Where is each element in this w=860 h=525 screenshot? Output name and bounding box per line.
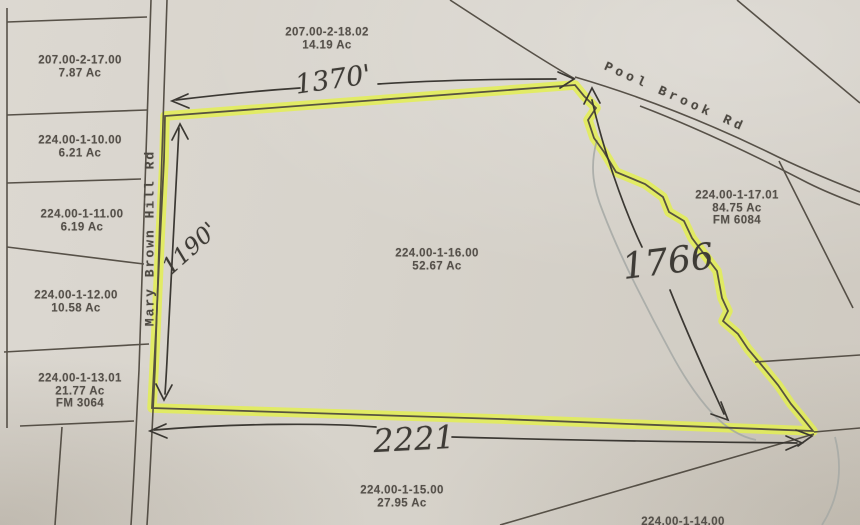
left-parcel-line-3	[7, 179, 141, 183]
parcel-id: 224.00-1-12.00	[34, 290, 118, 303]
parcel-label-207-00-2-17-00: 207.00-2-17.00 7.87 Ac	[38, 55, 122, 80]
left-parcel-line-4	[7, 247, 144, 264]
left-parcel-line-7	[55, 427, 62, 525]
parcel-id: 224.00-1-13.01	[38, 372, 122, 385]
left-parcel-line-6	[20, 421, 134, 426]
parcel-acreage: 21.77 Ac	[38, 385, 122, 398]
parcel-acreage: 84.75 Ac	[695, 202, 779, 215]
parcel-id: 224.00-1-17.01	[695, 189, 779, 202]
stream-line-south	[822, 437, 839, 525]
southeast-corner-line	[814, 428, 860, 432]
parcel-acreage: 52.67 Ac	[395, 260, 479, 273]
parcel-acreage: 10.58 Ac	[34, 302, 118, 315]
parcel-acreage: 7.87 Ac	[38, 67, 122, 80]
dim-west-arrow-bottom	[156, 384, 172, 400]
parcel-id: 224.00-1-14.00	[641, 516, 725, 525]
right-parcel-line	[755, 355, 860, 362]
parcel-label-207-00-2-18-02: 207.00-2-18.02 14.19 Ac	[285, 27, 369, 52]
tax-parcel-map: 207.00-2-17.00 7.87 Ac 224.00-1-10.00 6.…	[0, 0, 860, 525]
parcel-id: 207.00-2-18.02	[285, 27, 369, 40]
parcel-label-224-00-1-10-00: 224.00-1-10.00 6.21 Ac	[38, 135, 122, 160]
right-diagonal-line	[779, 161, 853, 308]
left-parcel-line-2	[7, 110, 147, 115]
dimension-south-value: 2221	[372, 418, 455, 460]
road-label-mary-brown-hill-rd: Mary Brown Hill Rd	[143, 150, 158, 326]
parcel-id: 224.00-1-11.00	[41, 209, 124, 222]
northeast-diagonal	[737, 0, 860, 103]
parcel-label-224-00-1-15-00: 224.00-1-15.00 27.95 Ac	[360, 485, 444, 510]
left-parcel-line-5	[4, 344, 149, 352]
parcel-label-224-00-1-13-01: 224.00-1-13.01 21.77 Ac FM 3064	[38, 372, 122, 410]
left-parcel-line-1	[7, 17, 147, 22]
parcel-label-224-00-1-12-00: 224.00-1-12.00 10.58 Ac	[34, 290, 118, 315]
parcel-label-224-00-1-11-00: 224.00-1-11.00 6.19 Ac	[41, 209, 124, 234]
north-boundary-curve	[450, 0, 575, 79]
dim-north-arrow-left	[172, 94, 189, 108]
parcel-id: 224.00-1-16.00	[395, 248, 479, 261]
parcel-id: 224.00-1-15.00	[360, 485, 444, 498]
south-parcel-diagonal	[500, 434, 814, 525]
parcel-acreage: 27.95 Ac	[360, 497, 444, 510]
parcel-label-224-00-1-14-00: 224.00-1-14.00	[641, 516, 725, 525]
dim-west-arrow-top	[172, 124, 188, 140]
parcel-label-224-00-1-17-01: 224.00-1-17.01 84.75 Ac FM 6084	[695, 189, 779, 227]
parcel-fm: FM 3064	[38, 397, 122, 410]
parcel-id: 224.00-1-10.00	[38, 135, 122, 148]
parcel-label-224-00-1-16-00: 224.00-1-16.00 52.67 Ac	[395, 248, 479, 273]
parcel-acreage: 6.19 Ac	[41, 221, 124, 234]
parcel-acreage: 6.21 Ac	[38, 147, 122, 160]
parcel-fm: FM 6084	[695, 214, 779, 227]
parcel-acreage: 14.19 Ac	[285, 39, 369, 52]
parcel-id: 207.00-2-17.00	[38, 55, 122, 68]
